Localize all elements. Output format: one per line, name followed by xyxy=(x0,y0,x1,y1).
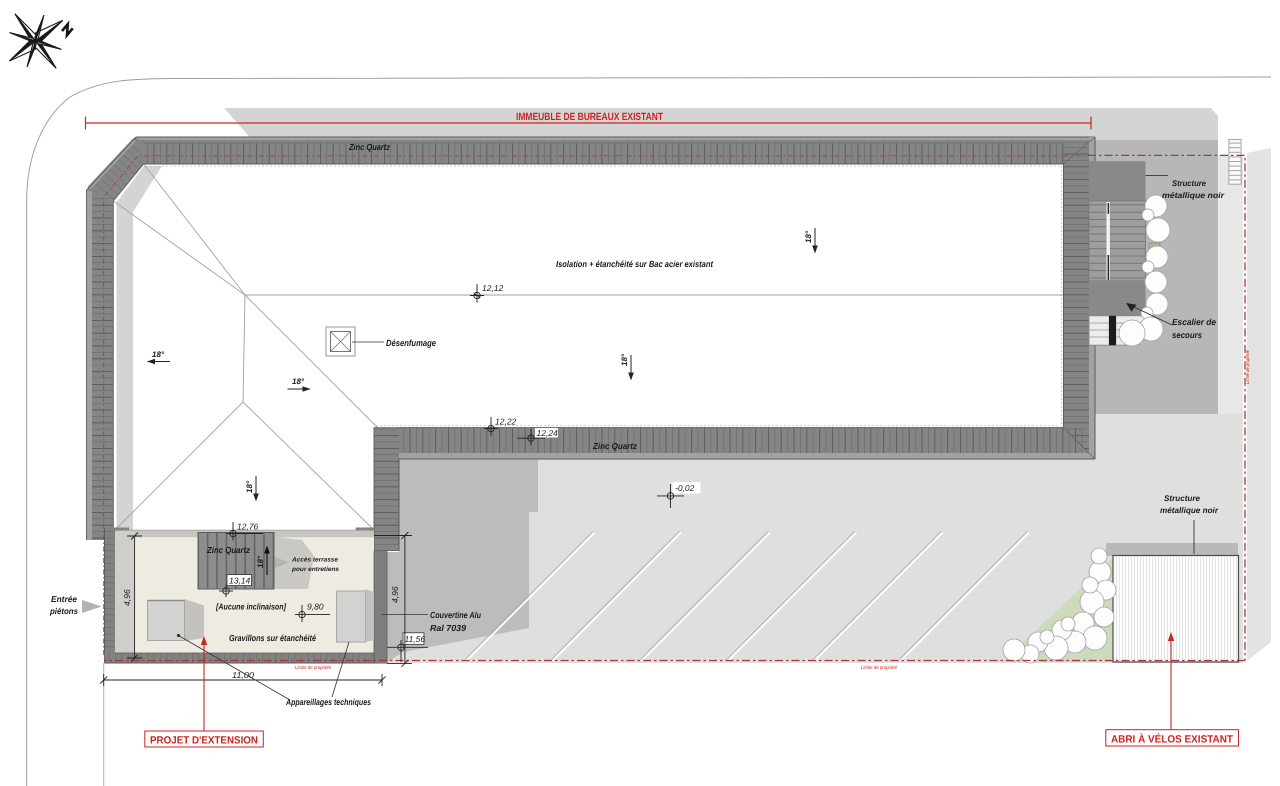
svg-text:Ral 7039: Ral 7039 xyxy=(430,623,466,633)
svg-text:Appareillages techniques: Appareillages techniques xyxy=(285,697,371,707)
svg-text:[Aucune inclinaison]: [Aucune inclinaison] xyxy=(215,602,287,612)
svg-text:piétons: piétons xyxy=(49,606,78,616)
svg-text:Limite de propriété: Limite de propriété xyxy=(861,665,897,671)
svg-text:18°: 18° xyxy=(292,377,305,386)
svg-text:Couvertine Alu: Couvertine Alu xyxy=(430,610,482,620)
svg-text:Limite de propriété: Limite de propriété xyxy=(295,665,331,671)
svg-text:18°: 18° xyxy=(256,555,265,568)
svg-text:18°: 18° xyxy=(152,350,165,359)
svg-text:secours: secours xyxy=(1172,330,1202,340)
svg-text:métallique noir: métallique noir xyxy=(1162,191,1225,200)
svg-text:12,76: 12,76 xyxy=(237,522,259,532)
svg-text:pour entretiens: pour entretiens xyxy=(291,566,340,573)
svg-text:Zinc Quartz: Zinc Quartz xyxy=(348,142,390,152)
svg-text:18°: 18° xyxy=(804,230,813,243)
svg-text:Limite de propriété: Limite de propriété xyxy=(1245,350,1251,384)
svg-text:Zinc Quartz: Zinc Quartz xyxy=(206,545,250,555)
svg-text:Isolation + étanchéité sur Bac: Isolation + étanchéité sur Bac acier exi… xyxy=(556,259,714,269)
svg-text:4,96: 4,96 xyxy=(122,589,132,606)
svg-text:4,96: 4,96 xyxy=(390,586,400,603)
svg-text:-0,02: -0,02 xyxy=(675,483,695,493)
svg-text:9,80: 9,80 xyxy=(307,602,324,612)
svg-text:12,22: 12,22 xyxy=(495,417,517,427)
svg-text:IMMEUBLE DE BUREAUX EXISTANT: IMMEUBLE DE BUREAUX EXISTANT xyxy=(516,111,663,123)
svg-text:18°: 18° xyxy=(620,353,629,366)
svg-text:12,24: 12,24 xyxy=(537,428,559,438)
svg-text:ABRI À VÉLOS EXISTANT: ABRI À VÉLOS EXISTANT xyxy=(1111,733,1234,746)
svg-text:Structure: Structure xyxy=(1172,179,1206,188)
svg-text:Escalier de: Escalier de xyxy=(1172,317,1216,327)
svg-text:12,12: 12,12 xyxy=(482,283,504,293)
svg-text:Zinc Quartz: Zinc Quartz xyxy=(592,441,637,451)
svg-text:Désenfumage: Désenfumage xyxy=(386,338,436,348)
svg-text:11,56: 11,56 xyxy=(405,634,426,644)
svg-text:Structure: Structure xyxy=(1164,494,1200,503)
svg-text:18°: 18° xyxy=(245,480,254,493)
svg-text:Gravillons sur étanchéité: Gravillons sur étanchéité xyxy=(229,633,316,643)
svg-text:PROJET D'EXTENSION: PROJET D'EXTENSION xyxy=(150,735,258,747)
svg-text:Accès terrasse: Accès terrasse xyxy=(291,557,339,564)
svg-text:13,14: 13,14 xyxy=(229,576,251,586)
svg-text:11,00: 11,00 xyxy=(232,670,254,680)
svg-text:Entrée: Entrée xyxy=(51,594,77,604)
svg-text:métallique noir: métallique noir xyxy=(1160,506,1219,515)
